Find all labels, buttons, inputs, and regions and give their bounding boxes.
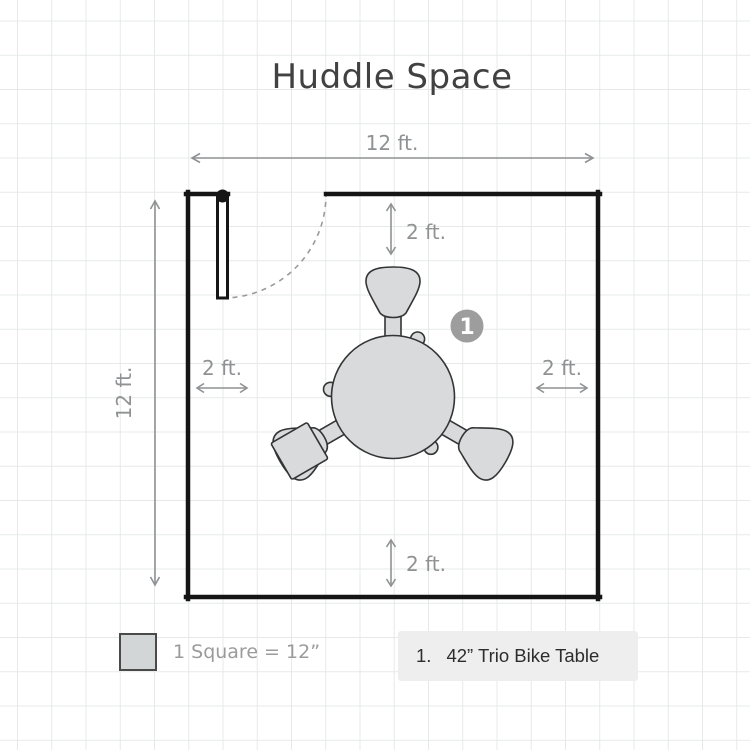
clearance-left-label: 2 ft.: [202, 356, 242, 380]
bike-seat-top: [366, 267, 420, 342]
door-leaf: [218, 197, 228, 298]
dimension-arrow-width: 12 ft.: [192, 131, 593, 163]
floor-plan-scene: Huddle Space 12 ft. 12 ft.: [0, 0, 750, 750]
clearance-right-label: 2 ft.: [542, 356, 582, 380]
room-height-label: 12 ft.: [112, 367, 136, 420]
clearance-top-label: 2 ft.: [406, 220, 446, 244]
legend-item-box: 1. 42” Trio Bike Table: [398, 631, 638, 681]
table-top: [332, 336, 455, 459]
door: [216, 190, 326, 299]
trio-bike-table: [267, 267, 519, 485]
legend-item-number: 1.: [398, 645, 431, 667]
item-badge: 1: [451, 310, 484, 343]
legend-scale-label: 1 Square = 12”: [173, 641, 320, 663]
room-width-label: 12 ft.: [366, 131, 419, 155]
badge-number: 1: [459, 315, 474, 340]
clearance-bottom: 2 ft.: [387, 540, 446, 586]
legend-item-label: 42” Trio Bike Table: [446, 645, 599, 667]
clearance-bottom-label: 2 ft.: [406, 552, 446, 576]
clearance-left: 2 ft.: [197, 356, 247, 393]
clearance-right: 2 ft.: [537, 356, 587, 393]
door-swing-arc: [223, 195, 327, 299]
dimension-arrow-height: 12 ft.: [112, 201, 160, 585]
legend-scale: 1 Square = 12”: [119, 632, 320, 672]
legend-scale-swatch: [119, 633, 157, 671]
clearance-top: 2 ft.: [387, 204, 446, 254]
